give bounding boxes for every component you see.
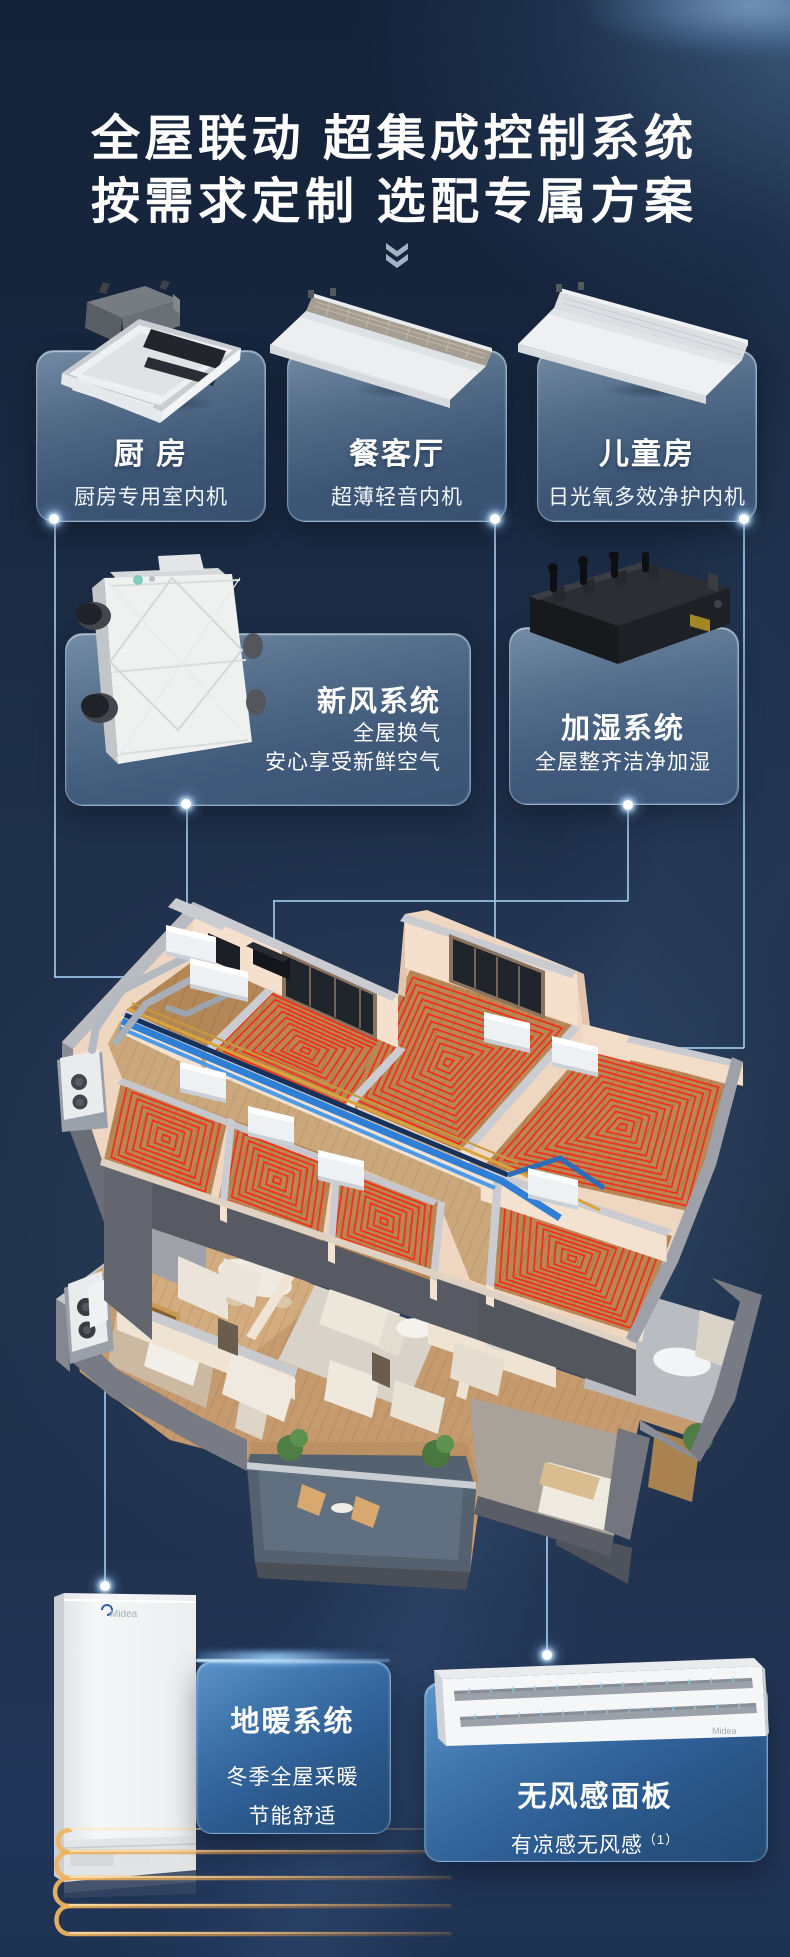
svg-text:Midea: Midea [110, 1609, 138, 1620]
svg-text:Midea: Midea [712, 1726, 737, 1736]
